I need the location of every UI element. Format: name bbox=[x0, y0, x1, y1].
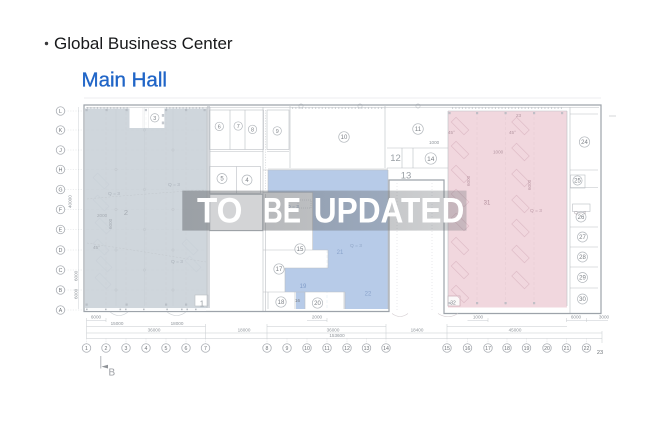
svg-text:18400: 18400 bbox=[411, 328, 424, 333]
svg-text:17: 17 bbox=[276, 267, 283, 273]
svg-text:1: 1 bbox=[200, 300, 205, 309]
svg-text:19: 19 bbox=[300, 284, 307, 290]
svg-text:6: 6 bbox=[185, 346, 188, 352]
svg-text:40000: 40000 bbox=[68, 195, 73, 208]
svg-text:6000: 6000 bbox=[527, 179, 532, 190]
svg-text:Q = 3: Q = 3 bbox=[108, 191, 120, 197]
svg-text:D: D bbox=[59, 248, 63, 254]
svg-text:36000: 36000 bbox=[148, 328, 161, 333]
svg-text:18000: 18000 bbox=[238, 328, 251, 333]
svg-text:6000: 6000 bbox=[571, 315, 582, 320]
svg-text:32: 32 bbox=[450, 301, 456, 307]
svg-text:K: K bbox=[59, 128, 63, 134]
svg-text:30: 30 bbox=[579, 297, 586, 303]
svg-text:9: 9 bbox=[276, 129, 279, 135]
svg-text:3: 3 bbox=[125, 346, 128, 352]
svg-text:16: 16 bbox=[465, 346, 471, 352]
svg-text:L: L bbox=[59, 109, 62, 115]
svg-text:45000: 45000 bbox=[509, 328, 522, 333]
svg-text:B: B bbox=[109, 368, 116, 379]
svg-text:12: 12 bbox=[344, 346, 350, 352]
svg-text:Q = 3: Q = 3 bbox=[350, 243, 362, 249]
svg-text:24: 24 bbox=[581, 140, 588, 146]
svg-text:13: 13 bbox=[364, 346, 370, 352]
svg-text:45°: 45° bbox=[93, 245, 100, 250]
svg-text:2: 2 bbox=[105, 346, 108, 352]
svg-text:3000: 3000 bbox=[599, 315, 610, 320]
svg-text:17: 17 bbox=[485, 346, 491, 352]
svg-text:6: 6 bbox=[218, 124, 221, 130]
svg-text:Q = 3: Q = 3 bbox=[171, 259, 183, 265]
svg-text:6000: 6000 bbox=[466, 175, 471, 186]
svg-text:15: 15 bbox=[297, 247, 304, 253]
svg-text:10: 10 bbox=[341, 135, 348, 141]
svg-text:Q = 3: Q = 3 bbox=[574, 210, 586, 216]
svg-text:Main Hall: Main Hall bbox=[82, 69, 167, 92]
svg-text:A: A bbox=[59, 308, 63, 314]
svg-text:31: 31 bbox=[484, 201, 491, 207]
svg-text:18000: 18000 bbox=[171, 321, 184, 326]
svg-text:C: C bbox=[59, 268, 63, 274]
svg-text:22: 22 bbox=[365, 292, 372, 298]
svg-text:Global Business Center: Global Business Center bbox=[54, 34, 233, 53]
svg-text:6000: 6000 bbox=[91, 315, 102, 320]
svg-text:H: H bbox=[59, 168, 63, 174]
svg-text:J: J bbox=[59, 148, 62, 154]
svg-text:23: 23 bbox=[597, 350, 603, 356]
svg-text:6000: 6000 bbox=[74, 270, 79, 281]
svg-text:2000: 2000 bbox=[97, 213, 108, 218]
svg-text:7: 7 bbox=[204, 346, 207, 352]
svg-text:9: 9 bbox=[286, 346, 289, 352]
svg-text:10: 10 bbox=[304, 346, 310, 352]
svg-text:11: 11 bbox=[415, 127, 422, 133]
svg-text:20: 20 bbox=[544, 346, 550, 352]
svg-text:B: B bbox=[59, 288, 63, 294]
svg-text:21: 21 bbox=[337, 250, 344, 256]
svg-text:25: 25 bbox=[574, 179, 581, 185]
svg-text:20: 20 bbox=[314, 301, 321, 307]
svg-text:45°: 45° bbox=[448, 130, 455, 135]
svg-text:G: G bbox=[58, 188, 62, 194]
svg-text:1: 1 bbox=[85, 346, 88, 352]
svg-text:3: 3 bbox=[153, 116, 156, 122]
svg-text:UPDATED: UPDATED bbox=[314, 192, 465, 231]
svg-text:BE: BE bbox=[263, 192, 301, 231]
svg-text:1000: 1000 bbox=[429, 140, 440, 145]
svg-text:28: 28 bbox=[579, 255, 586, 261]
svg-text:TO: TO bbox=[197, 192, 243, 231]
svg-text:18: 18 bbox=[504, 346, 510, 352]
svg-text:16: 16 bbox=[295, 298, 301, 303]
svg-text:23: 23 bbox=[516, 113, 522, 118]
svg-text:13: 13 bbox=[401, 171, 412, 182]
svg-text:21: 21 bbox=[564, 346, 570, 352]
svg-text:1000: 1000 bbox=[493, 150, 504, 155]
svg-text:4: 4 bbox=[145, 346, 148, 352]
svg-text:45°: 45° bbox=[509, 130, 516, 135]
svg-text:36000: 36000 bbox=[327, 328, 340, 333]
svg-text:19: 19 bbox=[524, 346, 530, 352]
svg-text:29: 29 bbox=[579, 276, 586, 282]
svg-text:7: 7 bbox=[237, 124, 240, 130]
svg-text:14: 14 bbox=[427, 156, 435, 163]
svg-text:2000: 2000 bbox=[312, 315, 323, 320]
svg-text:18: 18 bbox=[278, 300, 285, 306]
svg-text:5: 5 bbox=[165, 346, 168, 352]
svg-text:6000: 6000 bbox=[108, 218, 113, 229]
svg-text:153600: 153600 bbox=[329, 333, 345, 338]
svg-text:22: 22 bbox=[584, 346, 590, 352]
svg-text:14: 14 bbox=[383, 346, 389, 352]
svg-text:27: 27 bbox=[579, 235, 586, 241]
svg-text:1000: 1000 bbox=[473, 315, 484, 320]
svg-text:8: 8 bbox=[266, 346, 269, 352]
svg-text:Q = 3: Q = 3 bbox=[168, 182, 180, 188]
svg-text:8: 8 bbox=[251, 127, 254, 133]
svg-text:Q = 3: Q = 3 bbox=[530, 208, 542, 214]
svg-text:2: 2 bbox=[124, 208, 128, 217]
svg-text:11: 11 bbox=[324, 346, 329, 352]
svg-text:15: 15 bbox=[444, 346, 450, 352]
svg-text:E: E bbox=[59, 228, 63, 234]
svg-text:15000: 15000 bbox=[111, 321, 124, 326]
svg-text:F: F bbox=[59, 208, 62, 214]
svg-text:12: 12 bbox=[390, 153, 401, 164]
